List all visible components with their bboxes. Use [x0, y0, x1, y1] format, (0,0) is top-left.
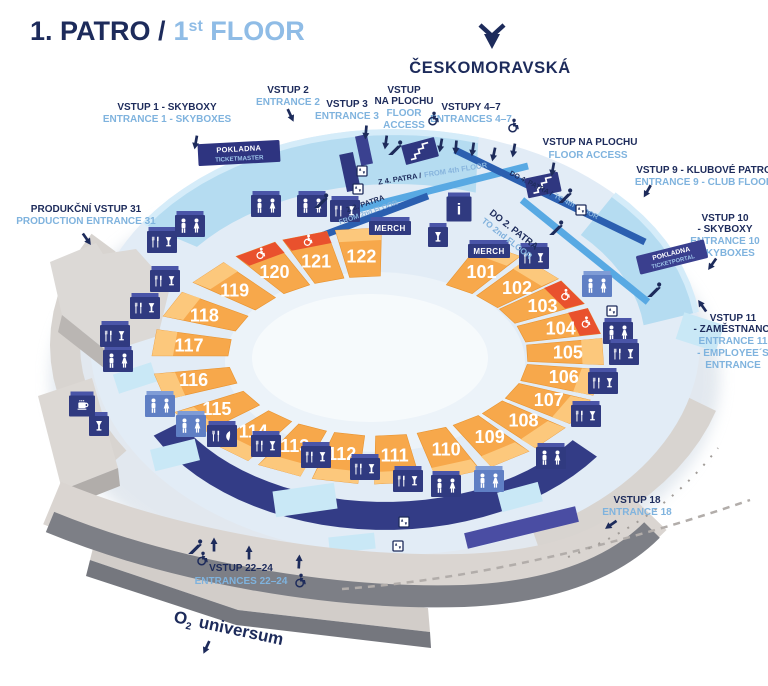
- restroom-icon: [103, 346, 133, 372]
- entrance-2-label-cz: VSTUP 2: [267, 85, 309, 96]
- entrance-11-label-cz2: - ZAMĚSTNANCI: [694, 322, 768, 335]
- entrance-11-label-en2: - EMPLOYEE´S: [697, 348, 768, 359]
- entrance-11-label-cz1: VSTUP 11: [710, 313, 757, 324]
- restroom-icon: [145, 391, 175, 417]
- elevator-icon: [393, 541, 403, 551]
- section-number: 118: [190, 305, 219, 325]
- restroom-icon: [536, 443, 566, 469]
- section-number: 115: [202, 399, 231, 419]
- section-number: 103: [527, 296, 557, 316]
- section-number: 116: [179, 370, 208, 390]
- entrances-22-24-label-en: ENTRANCES 22–24: [195, 576, 288, 587]
- entrances-22-24-label-cz: VSTUP 22–24: [209, 563, 273, 574]
- floor-access-left-en1: FLOOR: [387, 108, 423, 119]
- page-title: 1. PATRO /1st FLOOR: [30, 16, 305, 46]
- elevator-icon: [607, 306, 617, 316]
- entrance-3-label-cz: VSTUP 3: [326, 99, 368, 110]
- section-number: 110: [432, 439, 461, 459]
- box-office-ticketmaster: POKLADNA TICKETMASTER: [197, 140, 280, 166]
- coffee-icon: [69, 392, 95, 417]
- entrance-10-label-cz1: VSTUP 10: [701, 213, 748, 224]
- production-entrance-label-cz: PRODUKČNÍ VSTUP 31: [31, 202, 142, 215]
- food-drink-icon: [147, 227, 177, 253]
- floor-access-center-en: FLOOR ACCESS: [548, 150, 627, 161]
- info-label: i: [457, 202, 461, 219]
- food-drink-icon: [588, 368, 618, 394]
- title-czech: 1. PATRO /: [30, 16, 166, 46]
- floor-access-left-en2: ACCESS: [383, 120, 425, 131]
- food-drink-icon: [301, 442, 331, 468]
- entrance-11-label-en1: ENTRANCE 11: [699, 336, 768, 347]
- elevator-icon: [576, 205, 586, 215]
- elevator-icon: [399, 517, 409, 527]
- arena-floor-highlight: [252, 294, 488, 422]
- entrance-10-label-cz2: - SKYBOXY: [697, 224, 752, 235]
- o2-sub: 2: [184, 621, 192, 633]
- merch-stand: MERCH: [468, 240, 510, 258]
- title-english-number: 1: [174, 16, 189, 46]
- floor-access-left-cz1: VSTUP: [387, 85, 421, 96]
- elevator-icon: [357, 166, 367, 176]
- restroom-icon: [251, 191, 281, 217]
- section-number: 119: [220, 280, 249, 300]
- entrance-3-label-en: ENTRANCE 3: [315, 111, 379, 122]
- floor-access-center-cz: VSTUP NA PLOCHU: [542, 137, 637, 148]
- section-number: 120: [259, 262, 289, 282]
- metro-station-label: ČESKOMORAVSKÁ: [409, 58, 571, 77]
- section-number: 102: [502, 278, 532, 298]
- production-entrance-label-en: PRODUCTION ENTRANCE 31: [16, 216, 156, 227]
- section-number: 122: [346, 246, 376, 266]
- drink-icon: [428, 223, 448, 247]
- food-drink-icon: [150, 266, 180, 292]
- elevator-icon: [353, 184, 363, 194]
- section-number: 121: [301, 251, 331, 271]
- restroom-icon: [176, 411, 206, 437]
- food-drink-icon: [350, 454, 380, 480]
- food-drink-icon: [251, 431, 281, 457]
- section-number: 108: [508, 410, 538, 430]
- entrances-4-7-label-en: ENTRANCES 4–7: [430, 114, 512, 125]
- entrance-9-label-en: ENTRANCE 9 - CLUB FLOOR: [635, 177, 768, 188]
- entrance-18-label-en: ENTRANCE 18: [602, 507, 672, 518]
- section-number: 104: [546, 318, 576, 338]
- merch-label: MERCH: [374, 224, 405, 233]
- section-number: 105: [553, 343, 583, 363]
- restroom-icon: [582, 271, 612, 297]
- direction-arrow: [285, 108, 297, 124]
- food-drink-icon: [393, 466, 423, 492]
- merch-label: MERCH: [473, 247, 504, 256]
- metro-direction: ČESKOMORAVSKÁ: [409, 25, 571, 77]
- restroom-icon: [474, 466, 504, 492]
- food-drink-icon: [609, 339, 639, 365]
- entrance-9-label-cz: VSTUP 9 - KLUBOVÉ PATRO: [636, 163, 768, 176]
- direction-arrow: [200, 640, 212, 656]
- section-number: 101: [466, 262, 496, 282]
- vegetarian-food-icon: [207, 421, 237, 447]
- arena-map-canvas: 1011021031041051061071081091101111121131…: [0, 0, 768, 686]
- floor-access-left-cz2: NA PLOCHU: [374, 96, 433, 107]
- title-english-ordinal: st: [189, 18, 204, 35]
- food-drink-icon: [100, 321, 130, 347]
- section-number: 111: [381, 446, 409, 466]
- entrance-2-label-en: ENTRANCE 2: [256, 97, 320, 108]
- section-number: 117: [174, 336, 203, 356]
- section-number: 106: [549, 367, 579, 387]
- food-drink-icon: [130, 293, 160, 319]
- entrance-11-label-en3: ENTRANCE: [705, 360, 761, 371]
- food-drink-icon: [571, 401, 601, 427]
- entrance-18-label-cz: VSTUP 18: [613, 495, 660, 506]
- section-number: 109: [475, 427, 505, 447]
- restroom-icon: [175, 211, 205, 237]
- entrance-1-label-en: ENTRANCE 1 - SKYBOXES: [103, 114, 232, 125]
- title-english-rest: FLOOR: [203, 16, 305, 46]
- section-number: 107: [534, 390, 564, 410]
- restroom-icon: [431, 471, 461, 497]
- merch-stand: MERCH: [369, 217, 411, 235]
- metro-arrow-icon: [480, 25, 504, 49]
- entrances-4-7-label-cz: VSTUPY 4–7: [441, 102, 501, 113]
- arena-floor-map: 1011021031041051061071081091101111121131…: [0, 0, 768, 686]
- info-stand: i: [447, 193, 472, 222]
- entrance-1-label-cz: VSTUP 1 - SKYBOXY: [117, 102, 217, 113]
